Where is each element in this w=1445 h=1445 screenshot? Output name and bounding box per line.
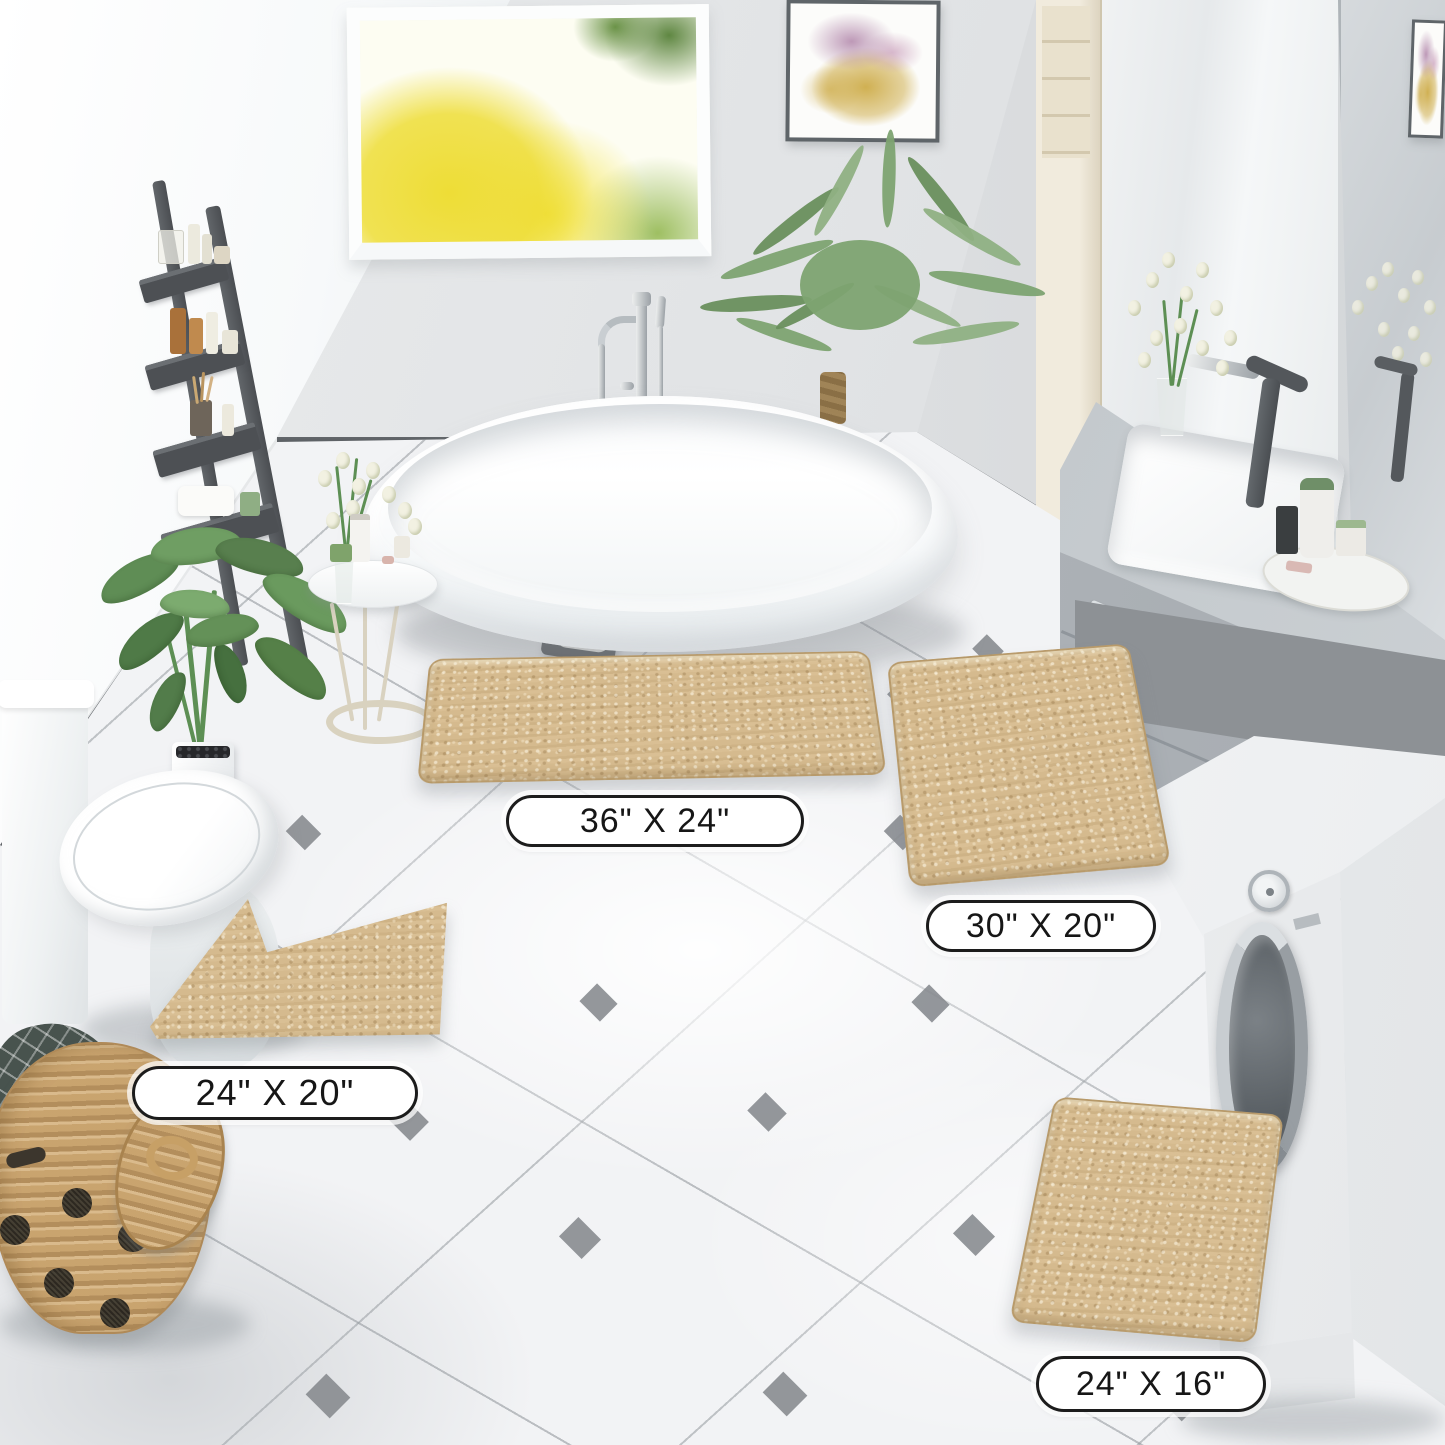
window-view-trees (360, 17, 698, 243)
table-white-jar (394, 536, 410, 558)
reflected-bloom (1352, 300, 1364, 315)
pump-bottle (206, 312, 218, 354)
reflected-bloom (1420, 352, 1432, 367)
size-label-24x16: 24" X 16" (1036, 1356, 1266, 1412)
gladiolus-bloom (382, 486, 396, 503)
faucet-handle (620, 382, 634, 390)
gladiolus-bloom (318, 470, 332, 487)
reflected-bloom (1424, 300, 1436, 315)
gladiolus-bloom (1224, 330, 1237, 346)
gladiolus-bloom (1180, 286, 1193, 302)
palm-frond (800, 240, 920, 330)
bath-mat-30x20 (887, 643, 1171, 887)
cream-jar (1336, 520, 1366, 556)
soap-dispenser (1300, 478, 1334, 558)
gladiolus-bloom (1216, 360, 1229, 376)
brush-cup (190, 400, 212, 436)
gladiolus-bloom (1138, 352, 1151, 368)
basket-dot (100, 1298, 130, 1328)
basket-dot (0, 1215, 30, 1245)
table-small-item (382, 556, 394, 564)
size-label-30x20: 30" X 20" (926, 900, 1156, 952)
reflected-bloom (1366, 276, 1378, 291)
gladiolus-bloom (1196, 262, 1209, 278)
gladiolus-bloom (408, 518, 422, 535)
gladiolus-bloom (326, 512, 340, 529)
bath-mat-36x24 (417, 651, 887, 784)
bathtub-basin (388, 404, 932, 612)
reflected-bloom (1378, 322, 1390, 337)
palm-frond (881, 129, 897, 227)
white-bottle (188, 224, 200, 264)
gladiolus-bloom (366, 462, 380, 479)
faucet-cap (632, 292, 651, 306)
dark-bottle (1276, 506, 1298, 554)
gladiolus-bloom (1146, 272, 1159, 288)
hand-shower-head (655, 296, 666, 329)
green-jar (240, 492, 260, 516)
basket-dot (62, 1188, 92, 1218)
reflected-bloom (1398, 288, 1410, 303)
gladiolus-bloom (1162, 252, 1175, 268)
mirror-art-paint (1411, 23, 1444, 136)
basket-dot (44, 1268, 74, 1298)
cream-box (214, 246, 230, 264)
toilet-tank-lid (0, 680, 94, 708)
reflected-bloom (1408, 326, 1420, 341)
bathroom-scene: 36" X 24" 30" X 20" 24" X 20" 24" X 16" (0, 0, 1445, 1445)
wall-art (785, 0, 940, 143)
gladiolus-bloom (1196, 340, 1209, 356)
gladiolus-bloom (1174, 318, 1187, 334)
amber-bottle (170, 308, 186, 354)
storage-unit-cubbies (1042, 6, 1090, 158)
white-tube (222, 404, 234, 436)
palm-frond (809, 142, 868, 238)
table-top (308, 560, 438, 608)
table-green-jar (330, 544, 352, 562)
mirror-art-reflection (1408, 19, 1445, 138)
bath-mat-24x16 (1009, 1096, 1284, 1343)
gladiolus-bloom (1128, 300, 1141, 316)
window (347, 4, 712, 260)
wall-art-watercolor (789, 3, 936, 138)
gladiolus-bloom (1210, 300, 1223, 316)
reflected-bloom (1382, 262, 1394, 277)
palm-trunk (820, 372, 846, 424)
gladiolus-bloom (1150, 330, 1163, 346)
gladiolus-bloom (352, 478, 366, 495)
size-label-36x24: 36" X 24" (506, 795, 804, 847)
table-base-ring (326, 700, 434, 744)
glass-jar (158, 230, 184, 264)
washer-dial-center (1266, 888, 1274, 896)
pot-pebbles (176, 746, 230, 758)
size-label-24x20: 24" X 20" (132, 1066, 418, 1120)
contour-mat-24x20 (143, 893, 458, 1045)
reflected-bloom (1412, 270, 1424, 285)
gladiolus-bloom (336, 452, 350, 469)
washer-dial (1248, 870, 1290, 912)
gladiolus-bloom (398, 502, 412, 519)
contour-mat-shape (143, 893, 458, 1045)
towel-stack (178, 486, 234, 516)
white-bottle (202, 234, 212, 264)
white-jar (222, 330, 238, 354)
amber-bottle (189, 318, 203, 354)
table-pump-bottle (350, 514, 370, 562)
